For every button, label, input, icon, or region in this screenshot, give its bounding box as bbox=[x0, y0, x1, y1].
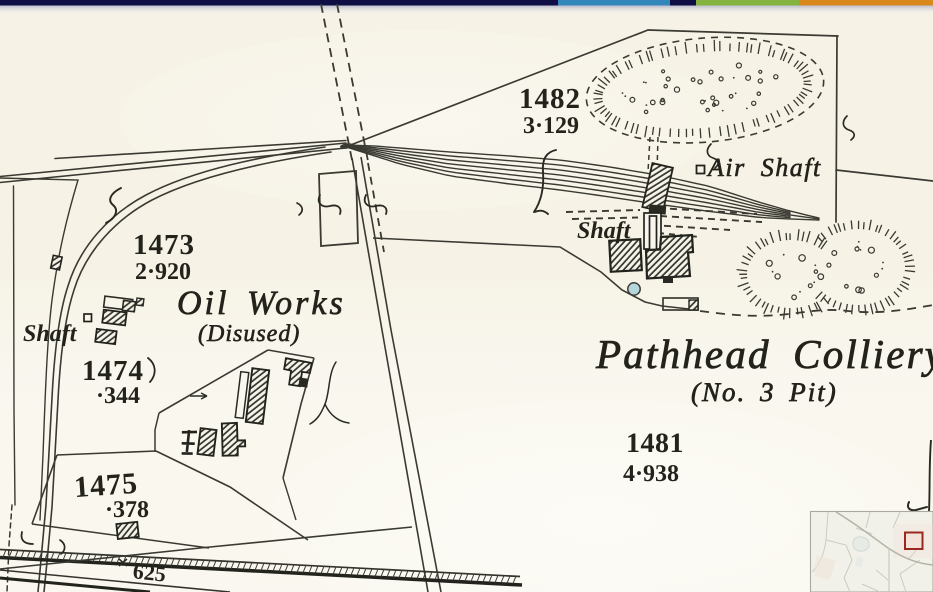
svg-text:Shaft: Shaft bbox=[23, 321, 78, 347]
svg-text:625: 625 bbox=[132, 558, 167, 586]
svg-text:1481: 1481 bbox=[626, 428, 684, 459]
svg-text:Air Shaft: Air Shaft bbox=[706, 153, 822, 182]
svg-text:Shaft: Shaft bbox=[577, 218, 632, 244]
svg-text:1473: 1473 bbox=[133, 229, 195, 261]
svg-text:1482: 1482 bbox=[519, 83, 581, 115]
svg-text:·378: ·378 bbox=[105, 497, 149, 523]
svg-text:(Disused): (Disused) bbox=[198, 321, 300, 347]
svg-text:(No. 3 Pit): (No. 3 Pit) bbox=[691, 377, 838, 407]
svg-text:Oil Works: Oil Works bbox=[177, 285, 346, 322]
svg-text:Pathhead Colliery: Pathhead Colliery bbox=[595, 331, 933, 377]
svg-text:3·129: 3·129 bbox=[523, 113, 579, 139]
svg-text:4·938: 4·938 bbox=[623, 461, 679, 487]
svg-text:2·920: 2·920 bbox=[135, 259, 191, 285]
svg-text:·344: ·344 bbox=[96, 383, 140, 409]
